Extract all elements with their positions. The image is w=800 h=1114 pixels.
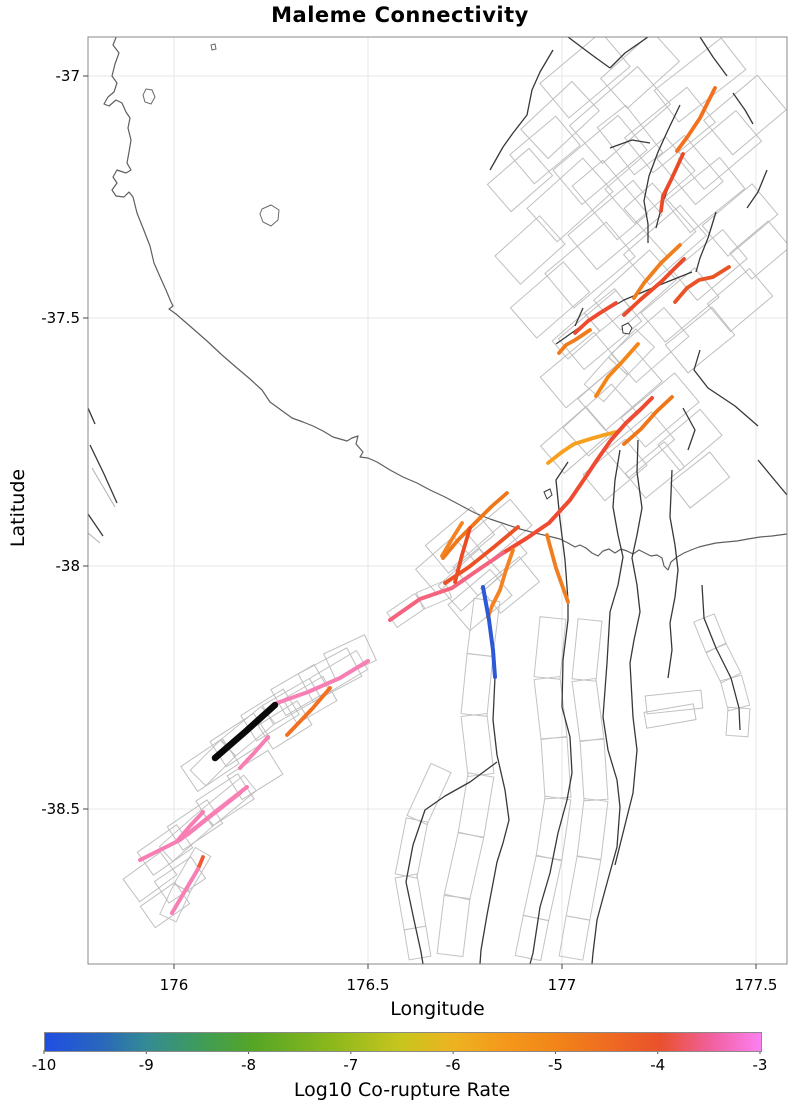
island bbox=[622, 323, 632, 334]
fault-subsection bbox=[404, 926, 431, 960]
fault-trace bbox=[88, 514, 103, 536]
x-axis-label: Longitude bbox=[88, 998, 787, 1020]
fault-subsection-rect bbox=[644, 704, 696, 728]
fault-subsection bbox=[461, 713, 494, 776]
fault-subsection bbox=[534, 617, 566, 680]
fault-trace bbox=[575, 308, 583, 326]
x-tick-label: 176 bbox=[160, 976, 189, 994]
fault-subsection bbox=[458, 773, 494, 837]
y-tick-label: -37 bbox=[20, 67, 80, 85]
figure: Maleme Connectivity Latitude Longitude L… bbox=[0, 0, 800, 1114]
rupture-segment bbox=[661, 154, 683, 211]
fault-trace bbox=[592, 450, 623, 964]
rupture-segment bbox=[547, 535, 568, 602]
fault-subsection bbox=[444, 832, 483, 900]
fault-subsection-rect bbox=[541, 407, 610, 474]
colorbar-tick-label: -4 bbox=[650, 1056, 665, 1074]
coastline bbox=[104, 35, 787, 570]
colorbar-tick-label: -8 bbox=[241, 1056, 256, 1074]
island bbox=[211, 44, 216, 50]
fault-subsection-rect bbox=[657, 135, 723, 204]
colorbar-tick-label: -3 bbox=[753, 1056, 768, 1074]
fault-subsection bbox=[395, 818, 428, 878]
y-axis-label: Latitude bbox=[7, 448, 29, 568]
fault-subsection-rect bbox=[665, 307, 734, 373]
island bbox=[260, 205, 279, 226]
x-tick-label: 176.5 bbox=[347, 976, 390, 994]
chart-title: Maleme Connectivity bbox=[0, 3, 800, 27]
fault-trace bbox=[90, 445, 117, 503]
fault-trace bbox=[480, 677, 509, 964]
fault-trace bbox=[702, 585, 740, 730]
fault-subsection-rect bbox=[140, 882, 189, 927]
fault-subsection bbox=[437, 895, 470, 956]
colorbar-tick-label: -10 bbox=[32, 1056, 57, 1074]
fault-subsection bbox=[559, 916, 590, 960]
fault-subsection bbox=[580, 739, 608, 801]
fault-subsection bbox=[572, 619, 602, 681]
fault-subsection-rect bbox=[707, 269, 772, 332]
fault-trace-light bbox=[88, 533, 100, 543]
fault-subsection-rect bbox=[654, 38, 746, 122]
fault-subsection-rect bbox=[495, 216, 565, 284]
colorbar-tick-label: -5 bbox=[548, 1056, 563, 1074]
fault-trace bbox=[758, 460, 787, 495]
fault-subsection bbox=[407, 763, 451, 824]
colorbar-tick-label: -7 bbox=[343, 1056, 358, 1074]
x-tick-label: 177 bbox=[548, 976, 577, 994]
colorbar-caption: Log10 Co-rupture Rate bbox=[44, 1079, 760, 1101]
colorbar-gradient bbox=[44, 1032, 762, 1052]
fault-subsection bbox=[467, 598, 500, 656]
fault-subsection bbox=[174, 847, 211, 892]
fault-subsection-rect bbox=[624, 183, 696, 257]
map-layers bbox=[88, 32, 790, 964]
fault-subsection bbox=[572, 678, 604, 741]
colorbar-tick-label: -9 bbox=[139, 1056, 154, 1074]
fault-subsection-rect bbox=[527, 158, 613, 242]
rupture-segment bbox=[624, 259, 684, 315]
fault-subsection-rect bbox=[510, 262, 589, 338]
fault-subsection bbox=[309, 651, 367, 698]
fault-subsection bbox=[577, 799, 608, 860]
fault-trace bbox=[490, 50, 553, 170]
fault-trace bbox=[668, 470, 678, 678]
fault-subsection-rect bbox=[658, 409, 722, 470]
fault-trace bbox=[694, 350, 758, 426]
fault-subsection bbox=[515, 915, 548, 960]
fault-subsection bbox=[461, 654, 493, 717]
fault-subsection bbox=[523, 855, 561, 921]
map-canvas bbox=[0, 0, 800, 1114]
fault-subsection-rect bbox=[521, 82, 599, 159]
x-tick-label: 177.5 bbox=[735, 976, 778, 994]
fault-subsection-rect bbox=[540, 32, 630, 118]
y-tick-label: -38.5 bbox=[20, 800, 80, 818]
fault-subsection bbox=[726, 707, 750, 737]
island bbox=[544, 489, 552, 499]
fault-subsection bbox=[566, 856, 601, 920]
rupture-segment bbox=[503, 398, 652, 553]
fault-subsection-rect bbox=[570, 67, 671, 164]
y-tick-label: -37.5 bbox=[20, 309, 80, 327]
fault-subsection-rect bbox=[624, 205, 707, 284]
colorbar-tick-label: -6 bbox=[446, 1056, 461, 1074]
fault-trace bbox=[700, 37, 727, 76]
fault-subsection bbox=[541, 737, 571, 799]
island bbox=[143, 89, 155, 104]
y-tick-label: -38 bbox=[20, 557, 80, 575]
fault-subsection-rect bbox=[545, 222, 635, 308]
fault-trace bbox=[88, 408, 95, 424]
